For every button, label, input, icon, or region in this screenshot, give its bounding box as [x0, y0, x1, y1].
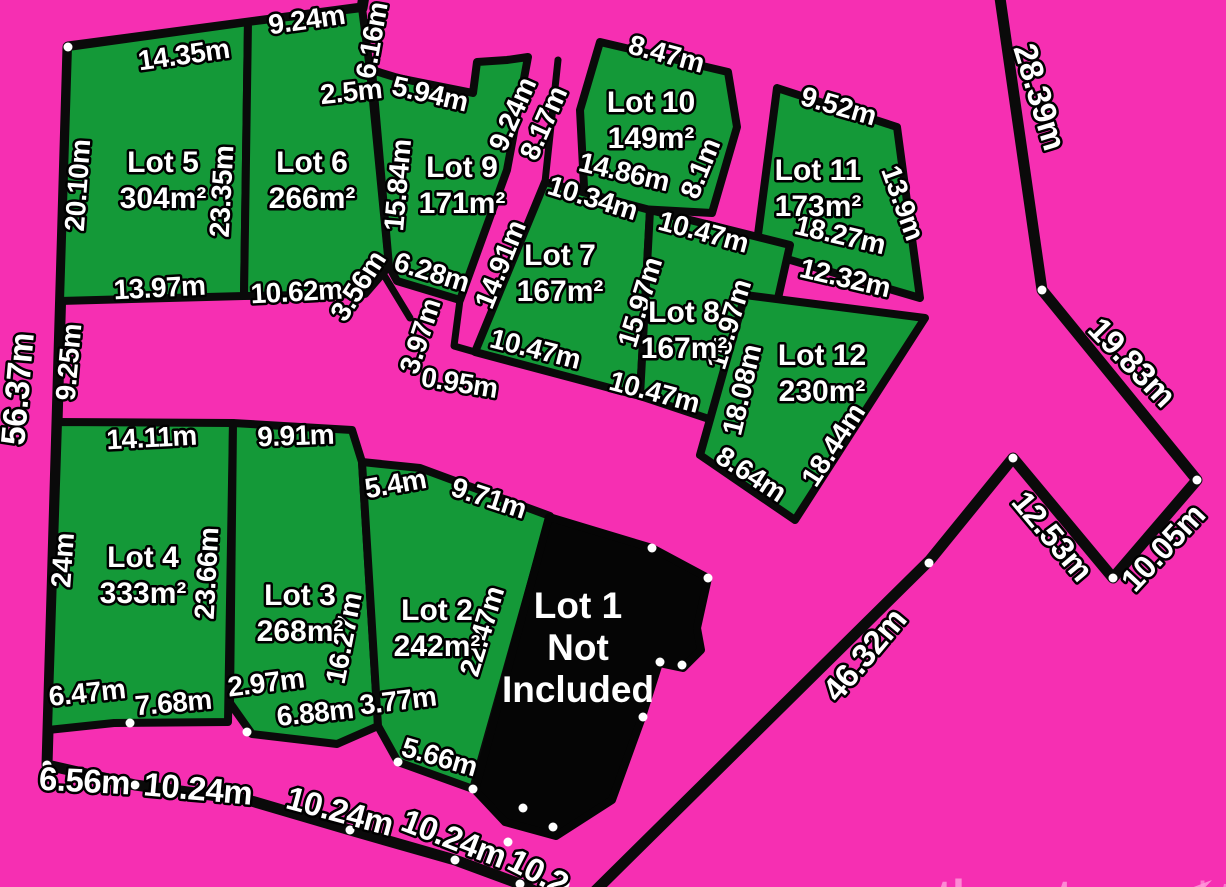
survey-vertex-dot [126, 719, 135, 728]
survey-vertex-dot [469, 785, 478, 794]
survey-vertex-dot [925, 559, 934, 568]
survey-vertex-dot [64, 43, 73, 52]
survey-vertex-dot [639, 713, 648, 722]
survey-vertex-dot [648, 544, 657, 553]
survey-vertex-dot [1038, 286, 1047, 295]
dimension-label: 9.91m [257, 419, 335, 453]
dimension-label: 24m [45, 532, 80, 589]
survey-vertex-dot [549, 823, 558, 832]
survey-vertex-dot [519, 804, 528, 813]
dimension-label: 13.97m [113, 270, 206, 306]
dimension-label: 6.56m [38, 760, 131, 802]
dimension-label: 23.35m [204, 145, 240, 238]
survey-vertex-dot [656, 658, 665, 667]
dimension-label: 14.11m [106, 420, 198, 456]
subdivision-plan-canvas: 14.35m9.24m2.5m6.16m5.94m20.10m23.35m15.… [0, 0, 1226, 887]
dimension-label: 20.10m [59, 138, 96, 232]
watermark-brand-bold: southeast [855, 870, 1072, 887]
survey-vertex-dot [243, 728, 252, 737]
survey-vertex-dot [704, 574, 713, 583]
dimension-label: 23.66m [189, 527, 225, 620]
survey-vertex-dot [1193, 476, 1202, 485]
survey-vertex-dot [1009, 454, 1018, 463]
survey-vertex-dot [131, 781, 140, 790]
site-plan-svg: 14.35m9.24m2.5m6.16m5.94m20.10m23.35m15.… [0, 0, 1226, 887]
realty-watermark: southeast realty [855, 870, 1226, 887]
survey-vertex-dot [678, 661, 687, 670]
